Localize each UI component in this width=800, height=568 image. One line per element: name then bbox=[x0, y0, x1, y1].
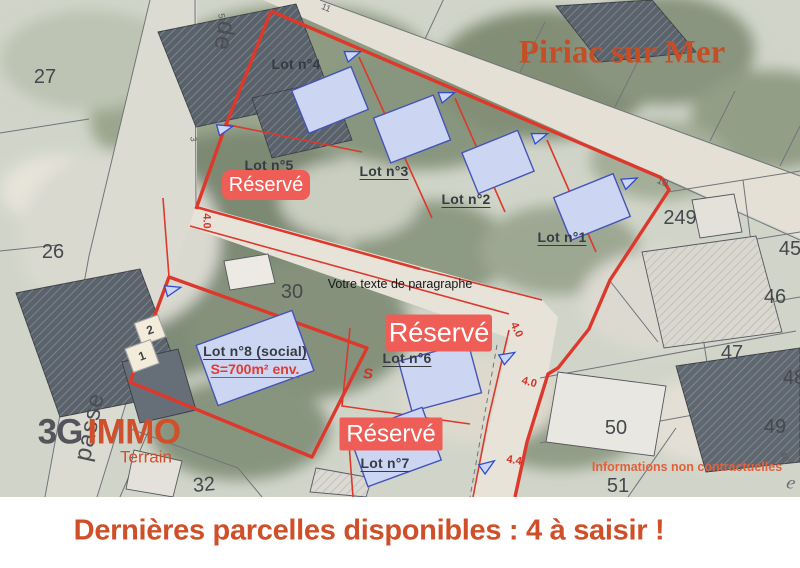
logo-immo: IMMO bbox=[87, 415, 180, 450]
page-title: Piriac sur Mer bbox=[519, 37, 725, 70]
lot-label-1: Lot n°1 bbox=[538, 230, 587, 244]
parcel-number-51: 51 bbox=[607, 476, 629, 496]
poster: Piriac sur Mer Lot n°4 Lot n°5 Lot n°3 L… bbox=[0, 0, 800, 568]
lot-label-4: Lot n°4 bbox=[272, 57, 321, 71]
parcel-number-45: 45 bbox=[779, 239, 800, 259]
paragraph-placeholder-text: Votre texte de paragraphe bbox=[328, 278, 473, 291]
street-label-de: de bbox=[209, 19, 239, 53]
parcel-number-47: 47 bbox=[721, 343, 743, 363]
lot-label-2: Lot n°2 bbox=[442, 192, 491, 206]
banner-text: Dernières parcelles disponibles : 4 à sa… bbox=[74, 517, 665, 546]
parcel-number-249: 249 bbox=[663, 208, 696, 228]
dimension-label-west: 4.0 bbox=[201, 213, 212, 228]
bottom-banner: Dernières parcelles disponibles : 4 à sa… bbox=[0, 497, 800, 568]
reserved-badge-lot6: Réservé bbox=[386, 315, 492, 352]
parcel-number-48: 48 bbox=[783, 368, 800, 388]
lot-label-3: Lot n°3 bbox=[360, 164, 409, 178]
parcel-number-32: 32 bbox=[192, 474, 216, 496]
disclaimer-text: Informations non contractuelles bbox=[592, 461, 782, 474]
logo-terrain: Terrain bbox=[120, 449, 172, 466]
logo-3g: 3G bbox=[38, 415, 83, 450]
lot8-area-label: S=700m² env. bbox=[211, 362, 300, 376]
lot-label-7: Lot n°7 bbox=[361, 456, 410, 470]
lot-label-6: Lot n°6 bbox=[383, 351, 432, 365]
reserved-badge-lot5: Réservé bbox=[222, 170, 310, 200]
s-map-marker: S bbox=[363, 367, 373, 382]
parcel-number-26: 26 bbox=[42, 242, 64, 262]
parcel-number-27: 27 bbox=[34, 67, 56, 87]
parcel-number-30: 30 bbox=[281, 282, 303, 302]
parcel-number-50: 50 bbox=[605, 418, 627, 438]
lot-label-8: Lot n°8 (social) bbox=[203, 344, 307, 358]
parcel-number-49: 49 bbox=[764, 417, 786, 437]
reserved-badge-lot7: Réservé bbox=[340, 418, 443, 451]
parcel-number-46: 46 bbox=[764, 287, 786, 307]
map-area: Piriac sur Mer Lot n°4 Lot n°5 Lot n°3 L… bbox=[0, 0, 800, 497]
